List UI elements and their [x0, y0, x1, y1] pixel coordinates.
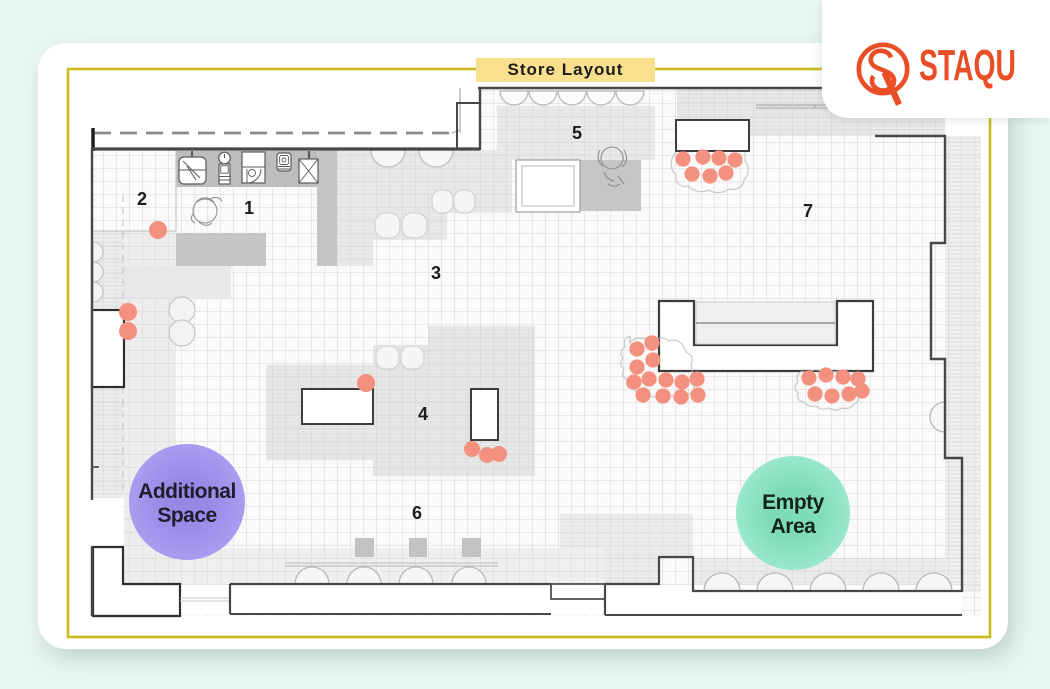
- svg-text:5: 5: [572, 123, 582, 143]
- svg-text:7: 7: [803, 201, 813, 221]
- svg-text:6: 6: [412, 503, 422, 523]
- svg-text:2: 2: [137, 189, 147, 209]
- svg-text:3: 3: [431, 263, 441, 283]
- svg-text:STAQU: STAQU: [919, 41, 1016, 90]
- svg-text:4: 4: [418, 404, 428, 424]
- svg-text:1: 1: [244, 198, 254, 218]
